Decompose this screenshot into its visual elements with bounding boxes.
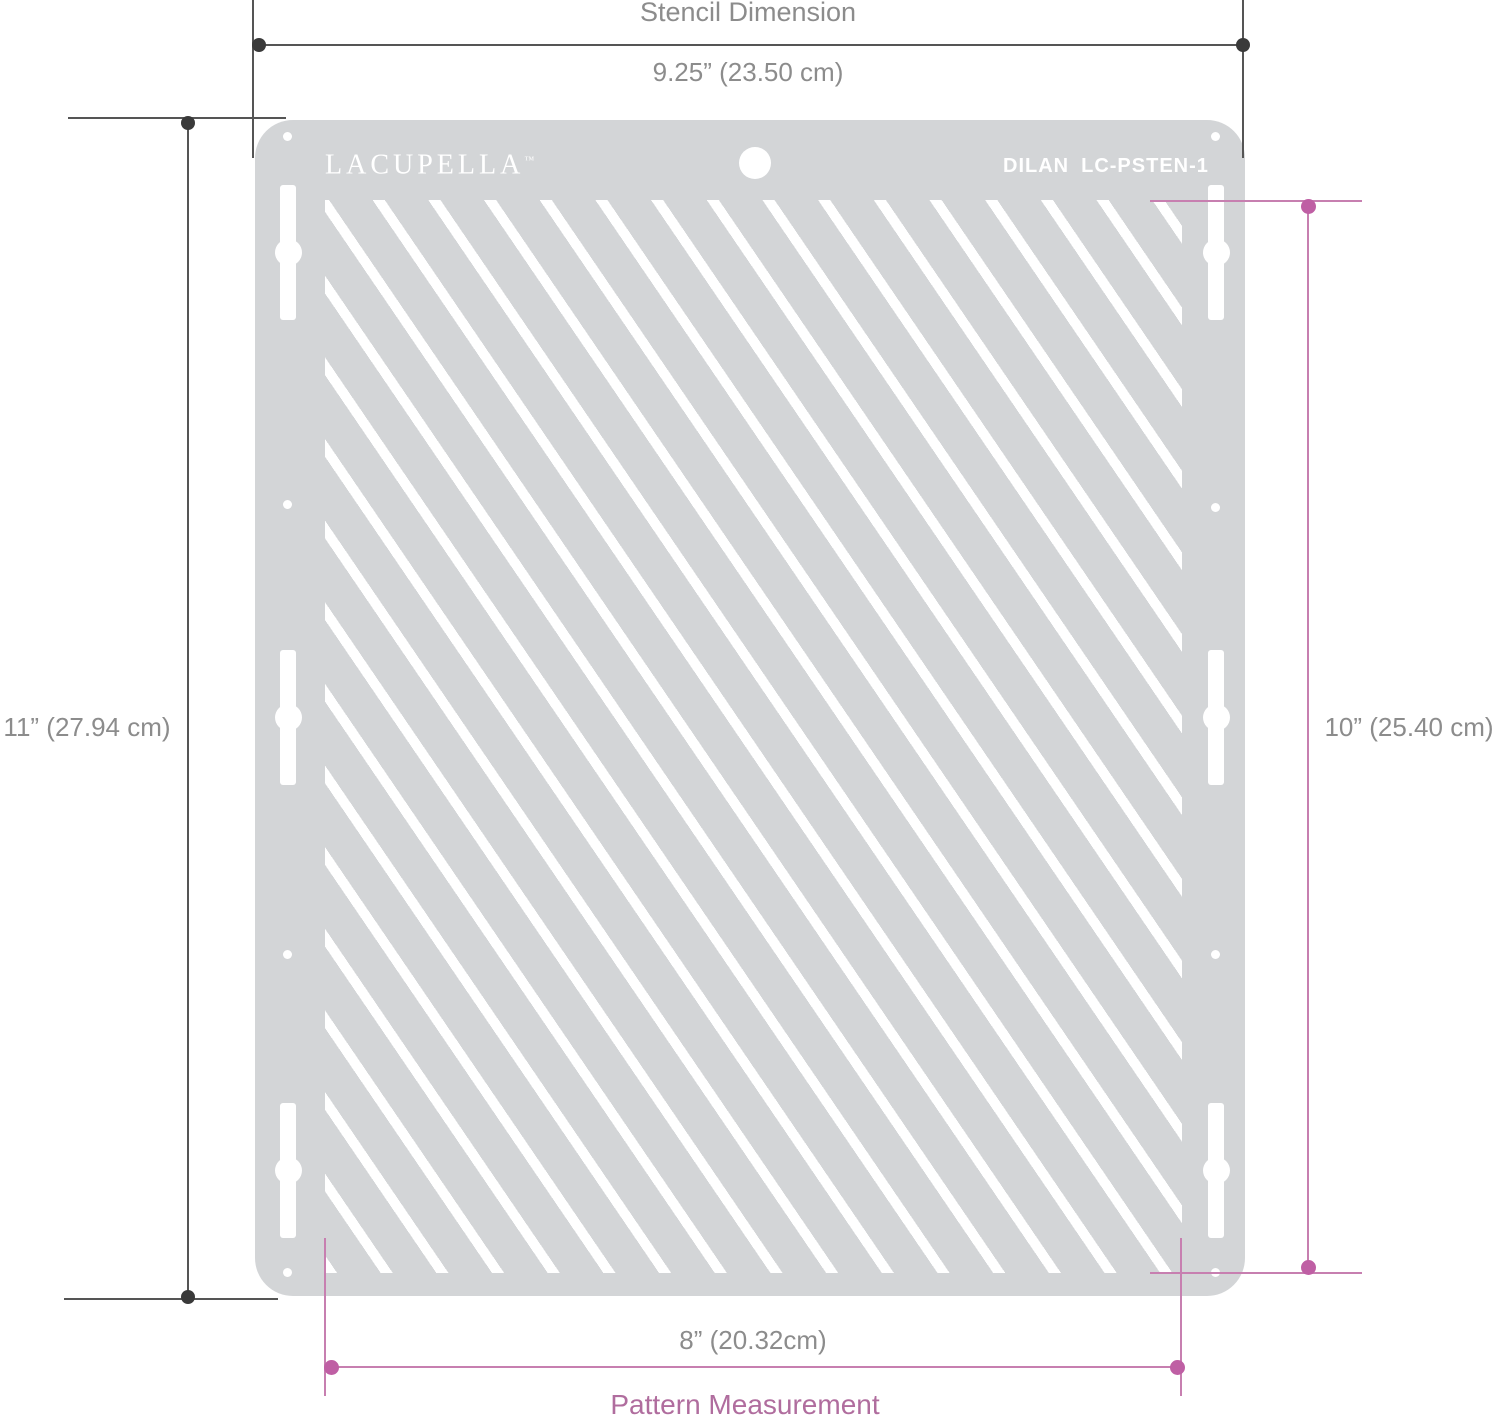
registration-circle: [1203, 239, 1230, 266]
registration-mark-right-middle: [1194, 650, 1238, 785]
registration-mark-right-top: [1194, 185, 1238, 320]
dimension-endpoint-dot: [181, 116, 195, 130]
brand-logo: LACUPELLA™: [325, 144, 535, 178]
pattern-measurement-title: Pattern Measurement: [445, 1389, 1045, 1421]
extension-line-pattern-top: [1150, 200, 1362, 202]
stencil-width-value: 9.25” (23.50 cm): [448, 57, 1048, 88]
dimension-endpoint-dot: [181, 1290, 195, 1304]
registration-circle: [275, 239, 302, 266]
registration-mark-left-middle: [266, 650, 310, 785]
extension-line-top-left: [252, 0, 254, 158]
stencil-plate: LACUPELLA™ DILAN LC-PSTEN-1: [255, 120, 1245, 1296]
stencil-dimension-title: Stencil Dimension: [448, 0, 1048, 28]
registration-circle: [275, 1157, 302, 1184]
product-code: LC-PSTEN-1: [1081, 153, 1209, 179]
pin-hole-upper-right: [1211, 503, 1220, 512]
pin-hole-lower-left: [283, 950, 292, 959]
dimension-endpoint-dot: [1301, 199, 1316, 214]
stencil-height-value: 11” (27.94 cm): [0, 712, 180, 743]
dimension-line-stencil-width: [258, 44, 1244, 46]
dimension-endpoint-dot: [324, 1360, 339, 1375]
pattern-width-value: 8” (20.32cm): [453, 1325, 1053, 1356]
dimension-line-pattern-width: [330, 1366, 1178, 1368]
registration-mark-left-top: [266, 185, 310, 320]
pin-hole-lower-right: [1211, 950, 1220, 959]
pin-hole-upper-left: [283, 500, 292, 509]
registration-mark-left-bottom: [266, 1103, 310, 1238]
registration-mark-right-bottom: [1194, 1103, 1238, 1238]
registration-circle: [1203, 1157, 1230, 1184]
dimension-endpoint-dot: [1170, 1360, 1185, 1375]
dimension-endpoint-dot: [1236, 38, 1250, 52]
pin-hole-top-left: [283, 132, 292, 141]
pin-hole-top-right: [1211, 132, 1220, 141]
registration-circle: [275, 704, 302, 731]
stencil-dimension-diagram: LACUPELLA™ DILAN LC-PSTEN-1: [0, 0, 1500, 1425]
extension-line-left-bottom: [64, 1298, 278, 1300]
product-code-label: DILAN LC-PSTEN-1: [1003, 153, 1209, 179]
dimension-endpoint-dot: [252, 38, 266, 52]
diagonal-stripe-pattern: [325, 200, 1182, 1273]
registration-circle: [1203, 704, 1230, 731]
dimension-endpoint-dot: [1301, 1260, 1316, 1275]
trademark-symbol: ™: [524, 155, 535, 166]
hanging-hole: [739, 147, 771, 179]
dimension-line-stencil-height: [187, 122, 189, 1298]
extension-line-left-top: [68, 117, 286, 119]
pin-hole-bottom-left: [283, 1268, 292, 1277]
extension-line-top-right: [1242, 0, 1244, 158]
pattern-height-value: 10” (25.40 cm): [1316, 712, 1500, 743]
brand-name: LACUPELLA: [325, 149, 524, 180]
dimension-line-pattern-height: [1307, 205, 1309, 1268]
model-name: DILAN: [1003, 153, 1069, 179]
